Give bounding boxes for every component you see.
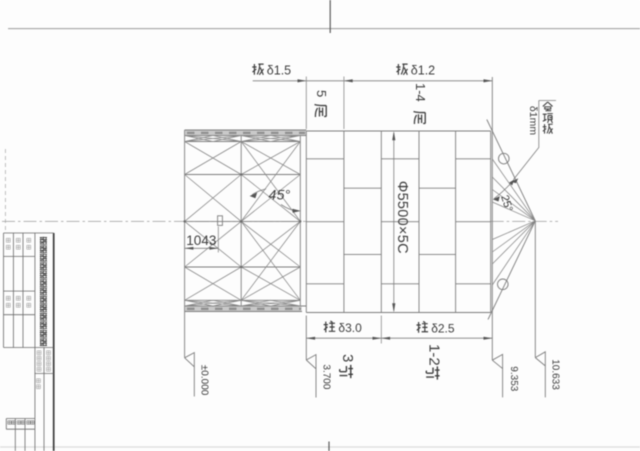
svg-text:δ3.0: δ3.0 [338, 321, 362, 335]
svg-text:Φ5500×5C: Φ5500×5C [394, 181, 410, 254]
svg-text:δ1.2: δ1.2 [411, 64, 435, 78]
svg-text:1043: 1043 [186, 233, 216, 248]
svg-text:δ1.5: δ1.5 [267, 64, 291, 78]
svg-text:1-2: 1-2 [425, 344, 442, 366]
svg-text:δ2.5: δ2.5 [431, 321, 455, 335]
svg-text:δ1mm: δ1mm [527, 106, 539, 135]
svg-text:3.700: 3.700 [320, 364, 331, 389]
svg-text:9.353: 9.353 [508, 366, 519, 391]
svg-text:45°: 45° [269, 187, 291, 203]
svg-text:3: 3 [339, 354, 356, 362]
svg-text:5: 5 [314, 90, 329, 97]
svg-text:1-4: 1-4 [413, 83, 428, 102]
svg-text:10.633: 10.633 [550, 359, 561, 390]
svg-text:±0.000: ±0.000 [199, 365, 210, 396]
